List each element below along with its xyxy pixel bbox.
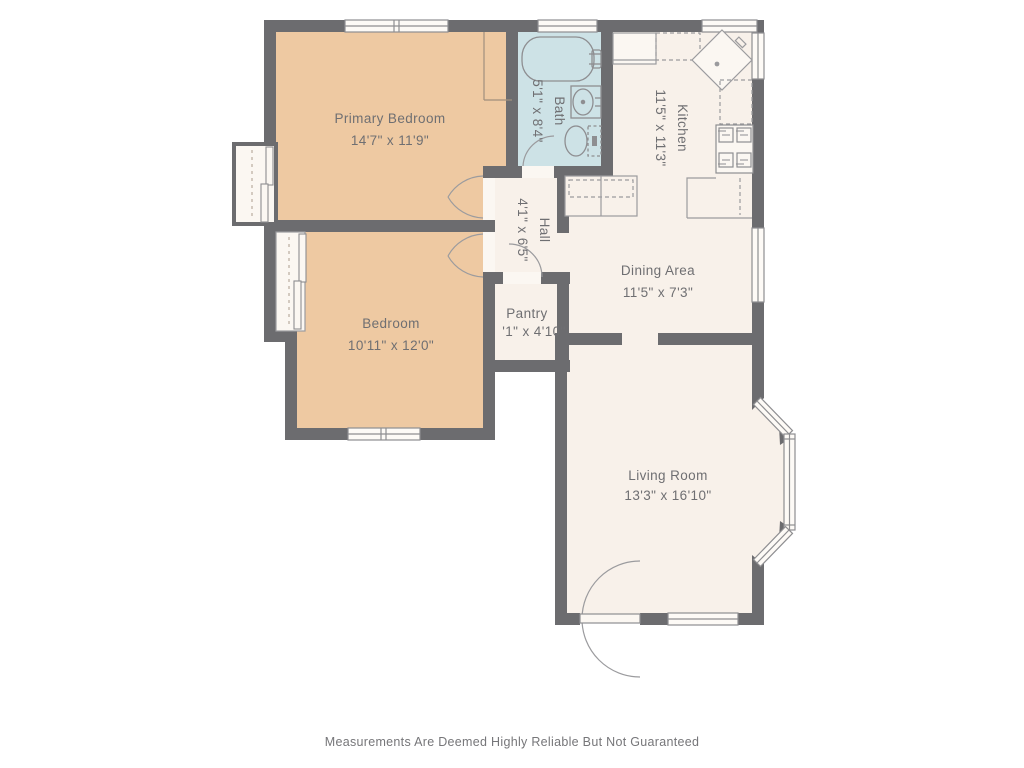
label-hall-dims: 4'1" x 6'5" [515, 198, 530, 261]
label-pantry: Pantry [506, 306, 547, 321]
label-primary-bedroom-dims: 14'7" x 11'9" [351, 133, 429, 148]
disclaimer-text: Measurements Are Deemed Highly Reliable … [325, 735, 700, 749]
label-kitchen-dims: 11'5" x 11'3" [653, 89, 668, 166]
label-pantry-dims: '1" x 4'10" [502, 324, 565, 339]
label-bedroom: Bedroom [362, 316, 420, 331]
opening-bath [522, 166, 554, 178]
label-dining-area-dims: 11'5" x 7'3" [623, 285, 693, 300]
room-pantry [490, 278, 563, 366]
floorplan-page: Primary Bedroom 14'7" x 11'9" Bedroom 10… [0, 0, 1024, 768]
closet-bedroom [276, 232, 306, 331]
window-kitchen-right [752, 33, 764, 79]
label-hall: Hall [537, 218, 552, 243]
window-kitchen-top [702, 20, 757, 32]
stove [716, 125, 753, 173]
refrigerator [613, 33, 656, 64]
window-bedroom-bottom [348, 428, 420, 440]
window-bath-top [538, 20, 597, 32]
window-living-bottom [668, 613, 738, 625]
label-bedroom-dims: 10'11" x 12'0" [348, 338, 434, 353]
floorplan-drawing: Primary Bedroom 14'7" x 11'9" Bedroom 10… [0, 0, 1024, 768]
dining-cabinet-block [565, 176, 637, 216]
opening-bedroom [483, 232, 495, 272]
label-bath-dims: 5'1" x 8'4" [530, 79, 545, 142]
window-dining-right [752, 228, 764, 302]
opening-pantry [503, 272, 541, 284]
room-primary-bedroom [270, 26, 512, 226]
label-bath: Bath [552, 96, 567, 125]
closet-primary-bedroom [234, 144, 276, 224]
window-primary-bedroom-top [345, 20, 448, 32]
label-living-room: Living Room [628, 468, 707, 483]
label-living-room-dims: 13'3" x 16'10" [624, 488, 711, 503]
opening-primary-bedroom [483, 178, 495, 220]
bay-window-center [784, 434, 795, 530]
label-kitchen: Kitchen [675, 104, 690, 152]
label-dining-area: Dining Area [621, 263, 695, 278]
label-primary-bedroom: Primary Bedroom [334, 111, 445, 126]
opening-dining-living [622, 333, 658, 345]
